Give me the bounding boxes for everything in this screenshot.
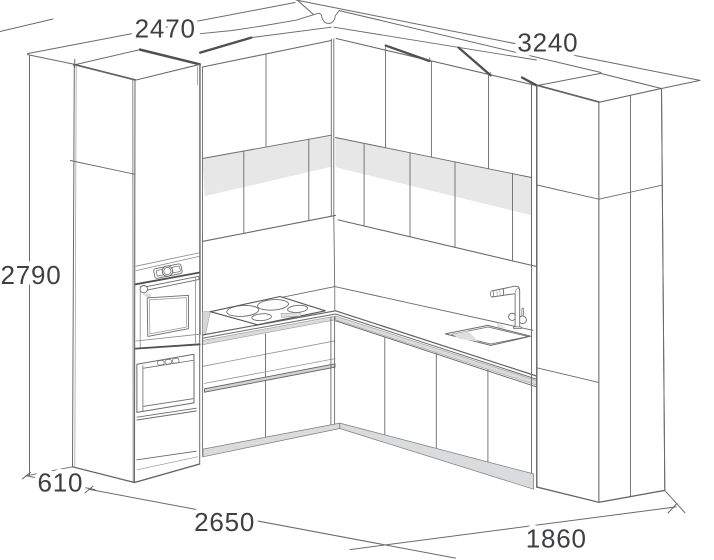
svg-text:3240: 3240 [517, 28, 578, 58]
svg-text:2790: 2790 [0, 260, 61, 290]
svg-text:1860: 1860 [526, 524, 587, 554]
svg-text:610: 610 [38, 468, 84, 498]
svg-text:2650: 2650 [194, 507, 255, 537]
svg-text:2470: 2470 [135, 13, 196, 43]
